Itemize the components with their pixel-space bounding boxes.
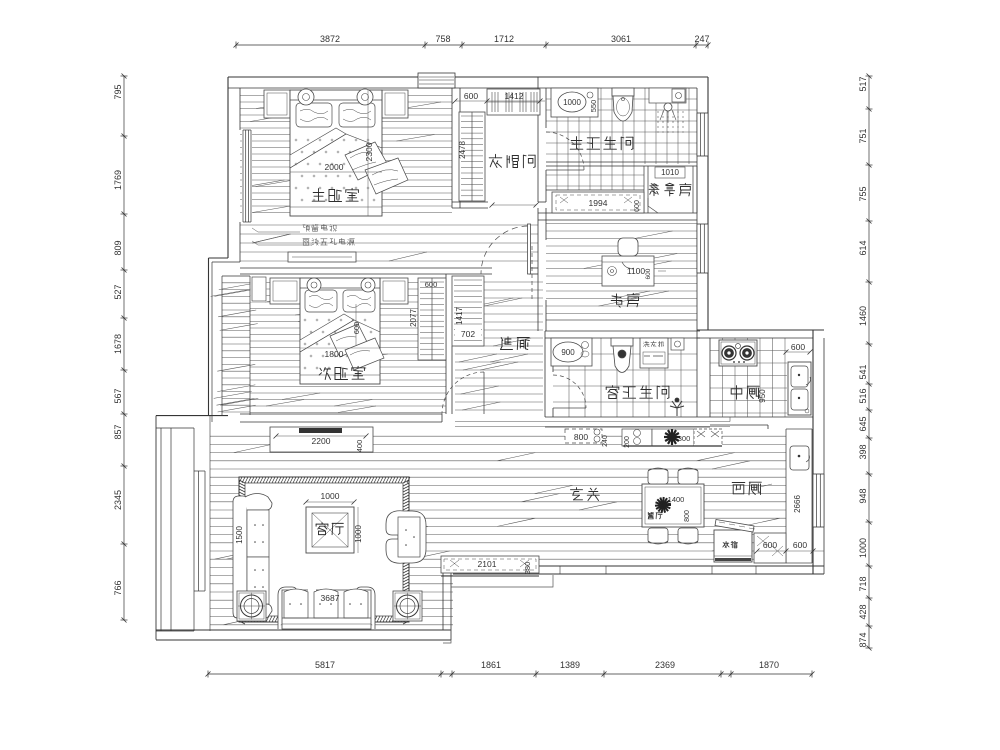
svg-text:718: 718 xyxy=(858,576,868,591)
svg-text:398: 398 xyxy=(858,444,868,459)
svg-text:600: 600 xyxy=(645,268,652,279)
svg-text:758: 758 xyxy=(435,34,450,44)
svg-text:1412: 1412 xyxy=(505,91,524,101)
svg-text:3061: 3061 xyxy=(611,34,631,44)
svg-text:2345: 2345 xyxy=(113,490,123,510)
svg-text:1389: 1389 xyxy=(560,660,580,670)
svg-text:600: 600 xyxy=(791,342,805,352)
svg-text:2200: 2200 xyxy=(312,436,331,446)
svg-text:3872: 3872 xyxy=(320,34,340,44)
svg-text:2000: 2000 xyxy=(325,162,344,172)
svg-text:751: 751 xyxy=(858,128,868,143)
svg-text:948: 948 xyxy=(858,488,868,503)
svg-text:380: 380 xyxy=(523,562,532,575)
svg-text:1000: 1000 xyxy=(858,538,868,558)
svg-text:600: 600 xyxy=(464,91,478,101)
svg-text:1500: 1500 xyxy=(235,526,244,544)
svg-text:428: 428 xyxy=(858,604,868,619)
svg-text:1100: 1100 xyxy=(627,266,646,276)
svg-text:600: 600 xyxy=(352,322,361,335)
svg-text:1000: 1000 xyxy=(321,491,340,501)
svg-text:400: 400 xyxy=(355,440,364,453)
svg-text:766: 766 xyxy=(113,580,123,595)
svg-text:1417: 1417 xyxy=(455,307,464,325)
svg-text:5817: 5817 xyxy=(315,660,335,670)
svg-text:950: 950 xyxy=(758,389,767,403)
svg-text:645: 645 xyxy=(858,416,868,431)
svg-text:874: 874 xyxy=(858,632,868,647)
svg-text:517: 517 xyxy=(858,76,868,91)
svg-text:2077: 2077 xyxy=(409,309,418,327)
svg-text:300: 300 xyxy=(678,434,691,443)
svg-text:550: 550 xyxy=(589,100,598,113)
svg-text:1870: 1870 xyxy=(759,660,779,670)
svg-text:1994: 1994 xyxy=(589,198,608,208)
svg-text:857: 857 xyxy=(113,424,123,439)
svg-text:1000: 1000 xyxy=(563,98,581,107)
svg-text:809: 809 xyxy=(113,240,123,255)
svg-text:800: 800 xyxy=(574,432,588,442)
svg-text:1712: 1712 xyxy=(494,34,514,44)
svg-text:1800: 1800 xyxy=(325,349,344,359)
svg-text:600: 600 xyxy=(793,540,807,550)
svg-text:1400: 1400 xyxy=(668,495,685,504)
svg-text:800: 800 xyxy=(684,510,691,522)
svg-text:527: 527 xyxy=(113,284,123,299)
svg-text:900: 900 xyxy=(561,348,575,357)
svg-text:2101: 2101 xyxy=(478,559,497,569)
svg-text:1678: 1678 xyxy=(113,334,123,354)
svg-text:1460: 1460 xyxy=(858,306,868,326)
svg-text:1769: 1769 xyxy=(113,170,123,190)
svg-text:600: 600 xyxy=(763,540,777,550)
svg-text:614: 614 xyxy=(858,240,868,255)
svg-text:2666: 2666 xyxy=(793,495,802,513)
svg-text:2300: 2300 xyxy=(364,142,374,161)
svg-text:541: 541 xyxy=(858,364,868,379)
svg-text:1000: 1000 xyxy=(354,525,363,543)
svg-text:1861: 1861 xyxy=(481,660,501,670)
svg-text:567: 567 xyxy=(113,388,123,403)
svg-text:795: 795 xyxy=(113,84,123,99)
svg-text:516: 516 xyxy=(858,388,868,403)
svg-text:702: 702 xyxy=(461,329,475,339)
svg-text:1010: 1010 xyxy=(661,168,679,177)
svg-text:600: 600 xyxy=(425,280,438,289)
svg-text:3687: 3687 xyxy=(321,593,340,603)
svg-text:600: 600 xyxy=(634,200,641,212)
svg-text:240: 240 xyxy=(602,435,609,447)
svg-text:755: 755 xyxy=(858,186,868,201)
svg-text:247: 247 xyxy=(694,34,709,44)
svg-text:2369: 2369 xyxy=(655,660,675,670)
svg-text:2478: 2478 xyxy=(458,141,467,159)
